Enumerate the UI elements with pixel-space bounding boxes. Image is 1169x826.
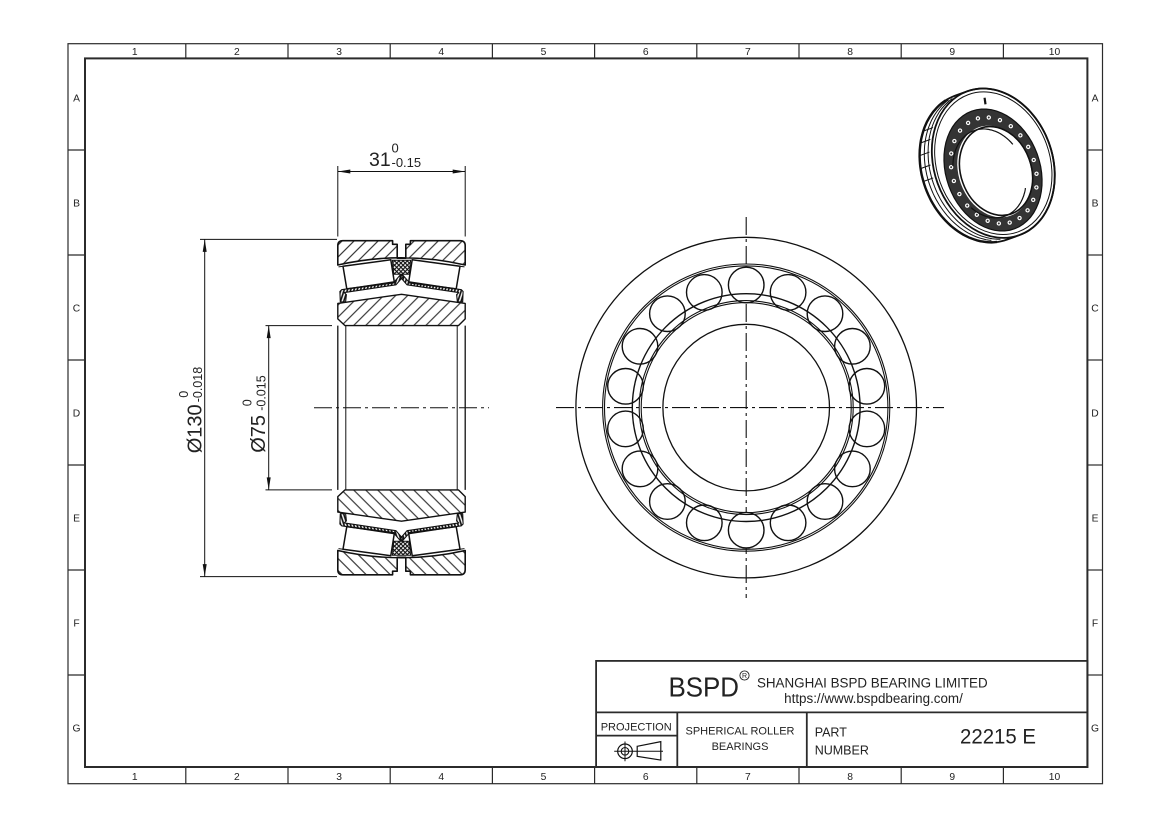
svg-text:B: B <box>1092 199 1099 210</box>
svg-text:A: A <box>1092 94 1099 105</box>
svg-text:7: 7 <box>745 772 751 783</box>
svg-text:0: 0 <box>392 141 399 156</box>
svg-text:-0.015: -0.015 <box>255 375 269 410</box>
svg-text:F: F <box>1092 619 1098 630</box>
svg-text:D: D <box>1091 409 1098 420</box>
svg-text:22215 E: 22215 E <box>960 724 1036 748</box>
svg-text:PROJECTION: PROJECTION <box>601 722 672 734</box>
svg-text:Ø130: Ø130 <box>185 404 207 453</box>
svg-text:31: 31 <box>369 149 391 171</box>
svg-text:5: 5 <box>541 772 547 783</box>
svg-text:4: 4 <box>438 772 444 783</box>
svg-text:6: 6 <box>643 772 649 783</box>
svg-text:B: B <box>73 199 80 210</box>
svg-text:NUMBER: NUMBER <box>815 743 869 757</box>
svg-text:-0.018: -0.018 <box>191 367 205 402</box>
svg-text:SHANGHAI BSPD BEARING LIMITED: SHANGHAI BSPD BEARING LIMITED <box>757 675 988 690</box>
svg-text:C: C <box>73 304 81 315</box>
svg-text:A: A <box>73 94 80 105</box>
svg-text:C: C <box>1091 304 1099 315</box>
svg-text:2: 2 <box>234 772 240 783</box>
svg-text:G: G <box>1091 724 1099 735</box>
svg-text:4: 4 <box>438 47 444 58</box>
svg-text:Ø75: Ø75 <box>248 415 270 453</box>
svg-text:PART: PART <box>815 725 848 739</box>
svg-text:6: 6 <box>643 47 649 58</box>
svg-text:R: R <box>742 673 747 680</box>
svg-text:9: 9 <box>949 772 955 783</box>
svg-text:BSPD: BSPD <box>669 672 740 703</box>
svg-text:8: 8 <box>847 772 853 783</box>
svg-text:https://www.bspdbearing.com/: https://www.bspdbearing.com/ <box>784 691 963 706</box>
svg-text:7: 7 <box>745 47 751 58</box>
svg-text:0: 0 <box>241 399 255 406</box>
svg-text:9: 9 <box>949 47 955 58</box>
svg-text:5: 5 <box>541 47 547 58</box>
svg-text:3: 3 <box>336 772 342 783</box>
svg-text:F: F <box>73 619 79 630</box>
svg-text:BEARINGS: BEARINGS <box>712 741 769 753</box>
svg-text:E: E <box>73 514 80 525</box>
svg-text:1: 1 <box>132 47 138 58</box>
svg-text:8: 8 <box>847 47 853 58</box>
svg-text:10: 10 <box>1049 47 1061 58</box>
svg-text:-0.15: -0.15 <box>392 155 422 170</box>
svg-text:10: 10 <box>1049 772 1061 783</box>
svg-text:E: E <box>1092 514 1099 525</box>
svg-text:1: 1 <box>132 772 138 783</box>
svg-text:SPHERICAL ROLLER: SPHERICAL ROLLER <box>685 725 794 737</box>
svg-text:3: 3 <box>336 47 342 58</box>
svg-text:G: G <box>72 724 80 735</box>
svg-text:D: D <box>73 409 80 420</box>
svg-text:2: 2 <box>234 47 240 58</box>
svg-text:0: 0 <box>177 391 191 398</box>
